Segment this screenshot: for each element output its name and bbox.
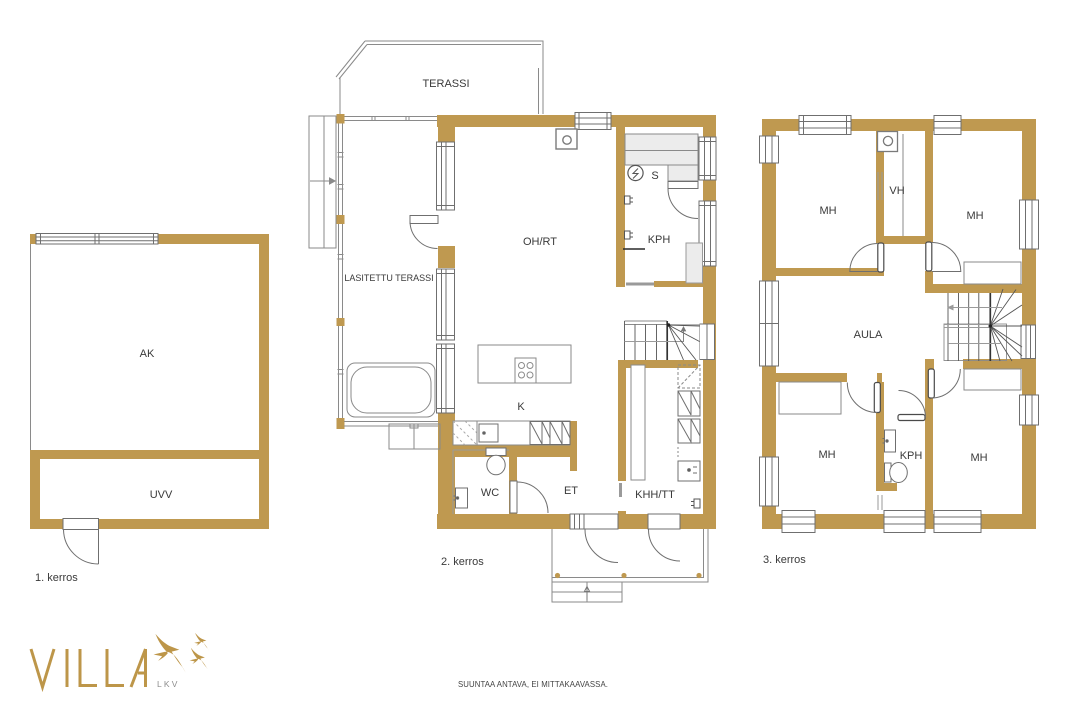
svg-text:KPH: KPH — [900, 450, 923, 462]
svg-text:AK: AK — [140, 348, 155, 360]
svg-text:1. kerros: 1. kerros — [35, 572, 78, 584]
svg-text:VH: VH — [889, 185, 904, 197]
svg-text:SUUNTAA ANTAVA, EI MITTAKAAVAS: SUUNTAA ANTAVA, EI MITTAKAAVASSA. — [458, 680, 608, 689]
svg-text:MH: MH — [966, 210, 983, 222]
svg-text:KPH: KPH — [648, 234, 671, 246]
svg-text:MH: MH — [818, 449, 835, 461]
svg-text:2. kerros: 2. kerros — [441, 556, 484, 568]
svg-text:MH: MH — [819, 205, 836, 217]
svg-text:LASITETTU TERASSI: LASITETTU TERASSI — [344, 273, 433, 283]
svg-text:LKV: LKV — [157, 679, 180, 689]
svg-text:OH/RT: OH/RT — [523, 236, 557, 248]
svg-text:S: S — [651, 170, 658, 182]
svg-text:UVV: UVV — [150, 489, 173, 501]
svg-text:WC: WC — [481, 487, 499, 499]
svg-text:ET: ET — [564, 485, 578, 497]
svg-text:KHH/TT: KHH/TT — [635, 489, 675, 501]
svg-text:TERASSI: TERASSI — [422, 78, 469, 90]
svg-text:MH: MH — [970, 452, 987, 464]
svg-text:3. kerros: 3. kerros — [763, 554, 806, 566]
svg-text:K: K — [517, 401, 525, 413]
svg-text:AULA: AULA — [854, 329, 883, 341]
